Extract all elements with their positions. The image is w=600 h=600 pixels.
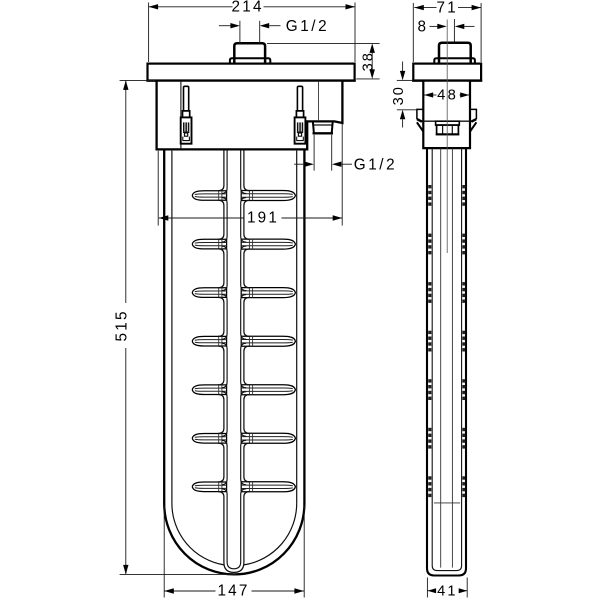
svg-text:71: 71 <box>436 0 457 16</box>
svg-text:515: 515 <box>113 309 130 341</box>
svg-text:48: 48 <box>437 88 458 104</box>
svg-text:30: 30 <box>391 85 407 105</box>
svg-text:191: 191 <box>247 209 279 226</box>
svg-text:41: 41 <box>437 583 458 599</box>
svg-text:147: 147 <box>217 583 249 600</box>
svg-text:G1/2: G1/2 <box>354 157 398 174</box>
svg-text:38: 38 <box>360 51 376 71</box>
svg-text:214: 214 <box>232 0 264 16</box>
svg-text:G1/2: G1/2 <box>286 18 330 35</box>
svg-text:8: 8 <box>418 18 429 35</box>
